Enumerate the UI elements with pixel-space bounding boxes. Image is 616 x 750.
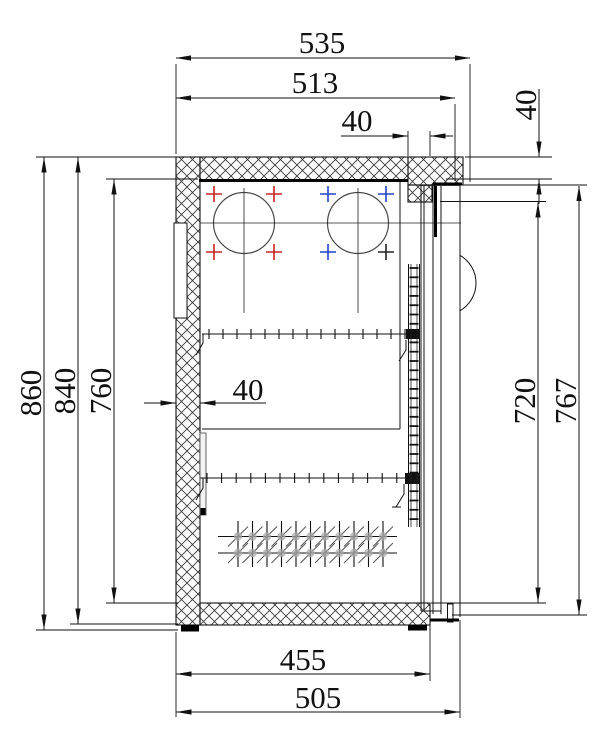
dimension-40-right: 40 bbox=[446, 89, 552, 204]
dim-label-top-front-frame: 40 bbox=[342, 103, 373, 138]
foot-left bbox=[181, 625, 199, 632]
dim-label-door-height: 767 bbox=[548, 378, 583, 425]
top-front-frame-lower-hatch bbox=[408, 185, 432, 202]
shelf-support-rail bbox=[409, 264, 420, 527]
wire-shelf-lower bbox=[196, 473, 419, 507]
fan-mount-marker-dark bbox=[378, 244, 394, 260]
wire-shelf-upper bbox=[196, 329, 419, 361]
back-wall-cover-panel bbox=[174, 223, 187, 318]
cabinet-feet bbox=[181, 625, 427, 632]
dim-label-body-height: 840 bbox=[47, 368, 82, 415]
dim-label-overall-height: 860 bbox=[13, 370, 48, 417]
dim-label-overall-depth: 535 bbox=[299, 25, 346, 60]
dimension-720: 720 bbox=[431, 202, 546, 604]
dim-label-interior-height: 760 bbox=[83, 368, 118, 415]
dim-label-back-wall-thickness: 40 bbox=[233, 372, 264, 407]
side-duct-panel-cap bbox=[201, 508, 206, 515]
top-wall-hatch bbox=[200, 157, 408, 180]
foot-right bbox=[408, 625, 427, 631]
bottom-floor-hatch bbox=[200, 603, 430, 625]
dim-label-inner-depth: 513 bbox=[292, 65, 339, 100]
dimension-40-top: 40 bbox=[341, 103, 453, 156]
glass-door bbox=[420, 157, 476, 622]
dim-label-top-frame-height: 40 bbox=[508, 90, 543, 121]
dimension-40-wall: 40 bbox=[144, 372, 266, 407]
dim-label-bottom-inner-depth: 455 bbox=[280, 642, 327, 677]
side-duct-panel bbox=[200, 433, 206, 515]
drawing-page: 535 513 40 40 860 840 760 bbox=[0, 0, 616, 750]
fan-units bbox=[200, 186, 461, 313]
technical-drawing-canvas: 535 513 40 40 860 840 760 bbox=[0, 0, 616, 750]
dim-label-door-opening-height: 720 bbox=[507, 378, 542, 425]
door-handle-profile bbox=[460, 255, 477, 311]
dim-label-bottom-depth: 505 bbox=[295, 680, 342, 715]
inner-liner bbox=[200, 181, 400, 515]
evaporator-coil bbox=[218, 521, 397, 567]
